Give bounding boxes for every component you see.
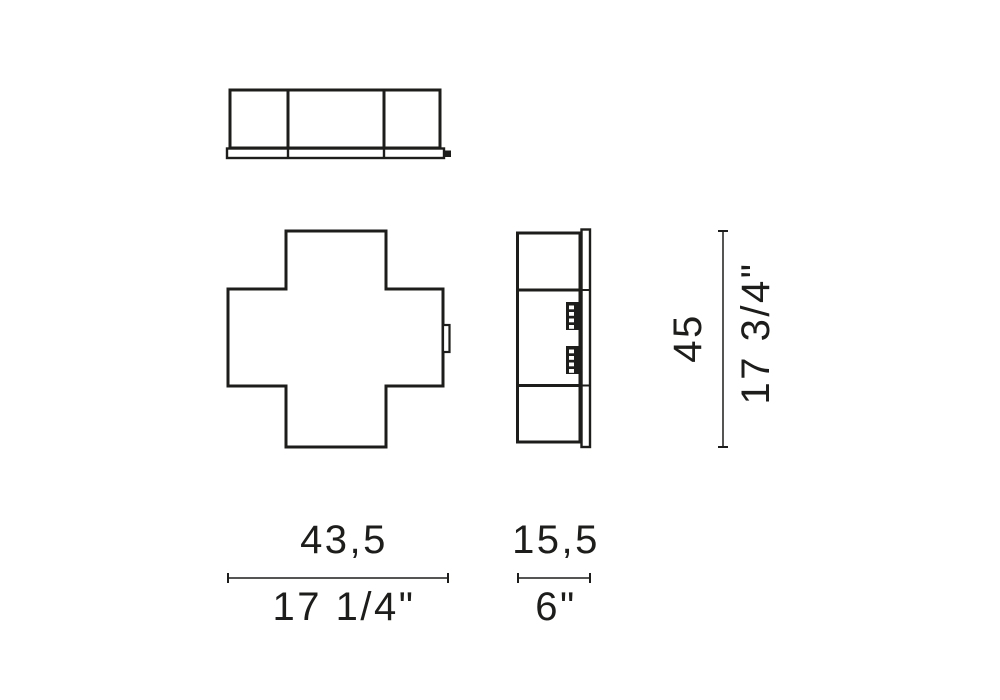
top-view-plug-nub [444,151,451,158]
front-view-side-tab [443,325,450,352]
width-imperial-label: 17 1/4" [273,585,416,629]
depth-dimension-line [518,573,590,583]
connector-block-top [566,302,580,330]
connector-pin [569,350,574,354]
side-view [518,230,591,448]
top-view [227,90,451,158]
front-view [228,231,450,447]
connector-pin [569,319,574,323]
top-view-base-strip [227,149,444,159]
side-view-body [518,233,581,442]
width-metric-label: 43,5 [300,518,388,562]
front-view-cross-outline [228,231,443,447]
connector-block-bottom [566,346,580,374]
height-dimension-line [718,231,728,447]
connector-pin [569,356,574,360]
connector-pin [569,312,574,316]
connector-pin [569,363,574,367]
technical-drawing: 43,5 17 1/4" 15,5 6" 45 17 3/4" [0,0,1000,700]
top-view-body [230,90,440,148]
connector-pin [569,306,574,310]
depth-metric-label: 15,5 [512,518,600,562]
connector-pin [569,369,574,373]
width-dimension-line [228,573,448,583]
depth-imperial-label: 6" [535,585,576,629]
side-view-back-panel [582,230,591,448]
spec-sheet: 43,5 17 1/4" 15,5 6" 45 17 3/4" [0,0,1000,700]
height-metric-label: 45 [666,313,710,363]
height-imperial-label: 17 3/4" [734,262,778,405]
connector-pin [569,325,574,329]
